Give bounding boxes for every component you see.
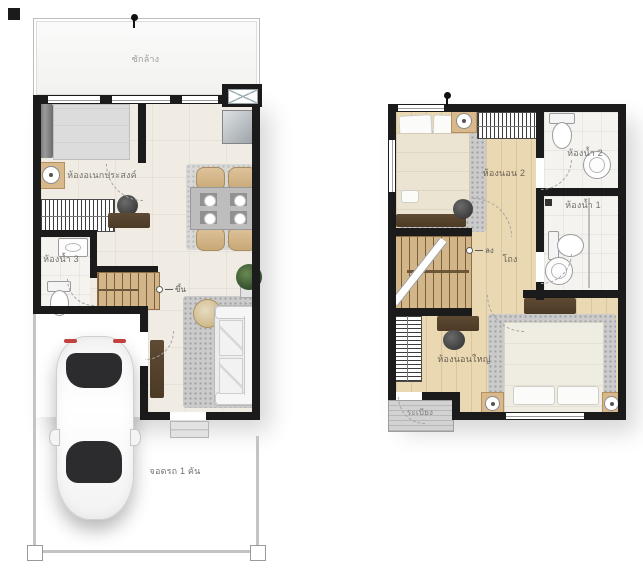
hall-label: โถง: [496, 252, 524, 266]
multipurpose-room-label: ห้องอเนกประสงค์: [56, 168, 148, 182]
fence-post: [250, 545, 266, 561]
garage-fence-right: [256, 436, 259, 554]
gate-pin-icon: [131, 14, 138, 21]
window: [506, 413, 584, 419]
dresser: [524, 298, 576, 314]
sofa: [214, 305, 256, 406]
window: [112, 96, 170, 103]
dining-table: [190, 187, 258, 230]
car-mirror: [49, 429, 60, 446]
placemat: [230, 211, 247, 224]
stair-marker-icon: [466, 247, 473, 254]
desk: [437, 316, 479, 331]
wall-stub: [8, 8, 20, 20]
tail-light-icon: [113, 339, 126, 343]
wall-stairs-bottom: [388, 308, 472, 316]
sofa-cushion: [219, 320, 243, 356]
drain-icon: [545, 199, 552, 206]
stair-marker-line: [165, 289, 173, 290]
tail-light-icon: [64, 339, 77, 343]
desk-chair: [443, 330, 465, 350]
stair-rail: [98, 289, 138, 291]
cabinet-counter: [222, 110, 256, 144]
bedroom2-label: ห้องนอน 2: [476, 166, 532, 180]
stairs-up-text: ขึ้น: [175, 283, 186, 296]
wall-between-bathrooms: [544, 188, 626, 196]
wall-step: [452, 392, 460, 420]
bathroom3-label: ห้องน้ำ 3: [34, 252, 88, 266]
window: [389, 140, 395, 192]
wardrobe-rack: [477, 112, 538, 139]
bathroom1-label: ห้องน้ำ 1: [558, 198, 608, 212]
stairs-down-text: ลง: [485, 244, 494, 257]
wall-right: [618, 104, 626, 420]
placemat: [200, 193, 217, 206]
wardrobe-rack: [36, 199, 115, 232]
wall-stairs: [97, 266, 158, 272]
stairs-down-label: ลง: [466, 244, 494, 257]
wall-left: [33, 95, 41, 314]
stairs-up-label: ขึ้น: [156, 283, 186, 296]
doormat: [170, 421, 209, 438]
desk: [108, 213, 150, 228]
stair-marker-icon: [156, 286, 163, 293]
fence-post: [27, 545, 43, 561]
entrance-door-opening: [170, 412, 206, 420]
garage-fence-bottom: [33, 550, 259, 553]
stool: [453, 199, 473, 219]
lamp-icon: [485, 396, 500, 411]
staircase: [392, 236, 472, 310]
wall-bedroom2-bottom: [388, 228, 472, 236]
car-mirror: [130, 429, 141, 446]
garage-fence-left: [33, 314, 36, 554]
wardrobe-rack: [392, 314, 422, 382]
book: [401, 190, 419, 203]
wall-right: [252, 95, 260, 420]
laundry-label: ซักล้าง: [33, 52, 258, 66]
window: [398, 105, 444, 111]
lamp-icon: [604, 396, 619, 411]
single-bed: [53, 104, 130, 160]
speaker-icon: [456, 113, 472, 129]
parking-label: จอดรถ 1 คัน: [130, 464, 220, 478]
pillow: [557, 386, 599, 405]
balcony-label: ระเบียง: [388, 406, 452, 419]
car-windshield: [66, 441, 122, 483]
stair-marker-line: [475, 250, 483, 251]
vent-window-icon: [228, 89, 258, 104]
sofa-cushion: [219, 358, 243, 394]
window: [48, 96, 100, 103]
car: [56, 336, 134, 520]
master-bedroom-label: ห้องนอนใหญ่: [434, 352, 494, 366]
toilet: [552, 122, 572, 149]
car-rear-window: [66, 353, 122, 388]
wall-bathroom1-bottom: [523, 290, 626, 298]
wall-bathroom3-top: [33, 230, 97, 237]
gate-pin-icon: [444, 92, 451, 99]
floor-plan-image: ซักล้าง ห้องอเนกประสงค์ ห้องน้ำ 3 ขึ้น จ…: [0, 0, 643, 576]
wall-bedroom-partition: [138, 95, 146, 163]
bathroom2-label: ห้องน้ำ 2: [560, 146, 610, 160]
staircase: [97, 272, 160, 310]
pillow: [513, 386, 555, 405]
dining-chair: [196, 227, 225, 251]
wall-bathroom3-side: [90, 230, 97, 278]
window: [182, 96, 218, 103]
wall-bottom-left: [33, 306, 148, 314]
placemat: [230, 193, 247, 206]
placemat: [200, 211, 217, 224]
